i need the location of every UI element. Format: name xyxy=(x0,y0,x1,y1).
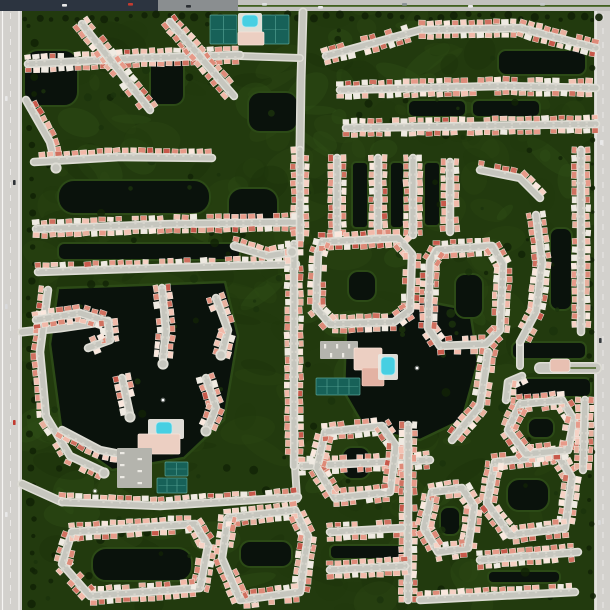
house xyxy=(373,313,380,319)
house xyxy=(460,552,467,557)
house xyxy=(58,66,64,71)
house xyxy=(399,480,404,486)
house xyxy=(142,496,148,501)
tree xyxy=(268,110,275,117)
house xyxy=(505,309,510,316)
house xyxy=(360,231,366,236)
house xyxy=(170,317,175,323)
house xyxy=(574,446,579,453)
aerial-scene xyxy=(0,0,610,610)
house xyxy=(592,115,598,120)
house xyxy=(432,297,438,305)
house xyxy=(285,440,290,447)
house xyxy=(135,519,142,525)
house xyxy=(478,335,485,340)
tree xyxy=(518,251,525,258)
house xyxy=(299,266,304,272)
house xyxy=(571,163,576,170)
house xyxy=(340,328,347,334)
house xyxy=(442,131,449,136)
house xyxy=(335,522,341,527)
house xyxy=(284,423,290,430)
house xyxy=(307,570,313,577)
house xyxy=(180,149,187,154)
house xyxy=(248,226,255,232)
house xyxy=(341,213,346,219)
house xyxy=(266,586,273,592)
house xyxy=(132,216,139,220)
house xyxy=(216,531,221,538)
lake xyxy=(424,162,440,226)
house xyxy=(412,563,417,570)
house xyxy=(399,513,404,520)
house xyxy=(118,520,125,525)
house xyxy=(31,353,37,360)
house xyxy=(588,413,593,420)
house xyxy=(366,497,373,503)
house xyxy=(140,216,146,221)
house xyxy=(304,189,309,195)
house xyxy=(39,152,46,158)
house xyxy=(507,587,514,592)
car xyxy=(318,6,323,9)
gatehouse-east xyxy=(550,359,570,372)
house xyxy=(562,474,568,481)
house xyxy=(529,536,536,541)
house xyxy=(409,117,417,123)
house xyxy=(133,229,139,234)
tree xyxy=(490,56,495,61)
house xyxy=(492,116,498,121)
house xyxy=(478,160,484,166)
house xyxy=(108,494,116,500)
house xyxy=(482,237,490,242)
house xyxy=(420,273,425,279)
house xyxy=(585,78,592,84)
tree xyxy=(523,483,528,488)
house xyxy=(265,490,272,495)
house xyxy=(58,319,65,325)
house xyxy=(293,597,299,603)
house xyxy=(298,349,303,355)
house xyxy=(150,497,157,502)
house xyxy=(218,523,223,530)
house xyxy=(403,179,409,186)
tree xyxy=(56,465,63,472)
house xyxy=(99,320,105,326)
car xyxy=(128,3,133,6)
house xyxy=(499,586,506,591)
house xyxy=(168,530,175,535)
tree xyxy=(439,527,446,534)
house xyxy=(494,563,501,568)
house xyxy=(469,20,475,25)
house xyxy=(368,132,375,137)
house xyxy=(504,325,510,333)
tree xyxy=(29,209,36,216)
house xyxy=(298,415,303,421)
house xyxy=(416,591,422,596)
tree xyxy=(465,268,472,275)
tree xyxy=(282,455,286,459)
house xyxy=(199,493,206,499)
house xyxy=(529,458,535,463)
house xyxy=(575,404,580,411)
house xyxy=(511,90,517,95)
house xyxy=(477,518,482,525)
tree xyxy=(100,15,108,23)
tree xyxy=(432,179,438,185)
house xyxy=(360,573,366,578)
house xyxy=(533,394,539,399)
house xyxy=(328,205,333,211)
cul-de-sac xyxy=(126,413,134,421)
lake xyxy=(550,228,572,310)
house xyxy=(304,197,309,203)
house xyxy=(382,171,387,177)
house xyxy=(335,574,342,578)
house xyxy=(344,244,350,249)
house xyxy=(393,557,399,563)
house xyxy=(106,585,113,591)
house xyxy=(369,221,374,227)
house xyxy=(169,335,176,342)
house xyxy=(419,305,424,312)
house xyxy=(528,221,534,228)
house xyxy=(258,518,265,523)
house xyxy=(559,544,566,549)
house xyxy=(417,188,423,195)
house xyxy=(372,46,380,53)
house xyxy=(58,492,66,498)
house xyxy=(102,534,109,540)
house xyxy=(502,562,509,567)
house xyxy=(550,116,557,121)
house xyxy=(511,77,517,82)
house xyxy=(392,118,399,123)
house xyxy=(403,93,410,98)
house xyxy=(477,356,483,363)
house xyxy=(172,149,178,154)
house xyxy=(544,78,550,83)
swimming-pool xyxy=(242,15,258,27)
house xyxy=(215,494,222,499)
house xyxy=(291,188,297,194)
tree xyxy=(187,185,192,190)
house xyxy=(440,167,445,173)
house xyxy=(357,327,363,332)
house xyxy=(529,284,535,292)
house xyxy=(444,92,451,97)
tree xyxy=(46,596,51,601)
house xyxy=(588,397,594,404)
house xyxy=(41,220,47,225)
house xyxy=(420,280,426,287)
house xyxy=(343,522,349,527)
house xyxy=(585,321,591,328)
house xyxy=(298,440,304,447)
house xyxy=(444,34,450,39)
tree xyxy=(310,423,317,430)
house xyxy=(398,588,403,595)
house xyxy=(454,184,459,191)
house xyxy=(507,284,512,291)
house xyxy=(382,221,388,229)
tree xyxy=(498,403,507,412)
house xyxy=(360,559,366,564)
tree xyxy=(187,554,191,558)
house xyxy=(526,547,533,553)
house xyxy=(585,230,590,236)
house xyxy=(166,497,173,502)
house xyxy=(223,509,231,514)
house xyxy=(495,479,500,486)
house xyxy=(419,33,426,38)
tree xyxy=(99,125,104,130)
house xyxy=(275,516,282,522)
house xyxy=(461,78,468,84)
house xyxy=(240,214,246,219)
tree xyxy=(30,244,36,250)
house xyxy=(417,171,423,179)
house xyxy=(147,147,153,153)
house xyxy=(421,493,427,501)
house xyxy=(466,589,473,594)
house xyxy=(527,523,534,529)
house xyxy=(218,514,224,521)
house xyxy=(531,245,536,253)
house xyxy=(97,148,103,154)
house xyxy=(536,23,543,29)
house xyxy=(290,180,296,186)
house xyxy=(459,117,465,123)
house xyxy=(344,232,350,237)
house xyxy=(108,231,115,236)
house xyxy=(348,327,355,333)
house xyxy=(541,38,548,44)
car xyxy=(13,180,16,185)
parked-car xyxy=(342,353,344,358)
parked-car xyxy=(120,452,125,454)
house xyxy=(351,133,357,138)
house xyxy=(417,155,422,161)
house xyxy=(414,286,419,293)
house xyxy=(157,48,163,54)
house xyxy=(585,147,590,153)
tree xyxy=(114,17,119,22)
house xyxy=(73,535,79,542)
house xyxy=(376,520,383,526)
house xyxy=(571,263,576,269)
house xyxy=(517,463,524,468)
house xyxy=(513,539,520,545)
house xyxy=(208,569,213,576)
house xyxy=(31,343,37,350)
house xyxy=(216,539,221,545)
house xyxy=(88,150,95,155)
house xyxy=(411,79,418,84)
tree xyxy=(223,464,231,472)
house xyxy=(48,308,54,313)
lake xyxy=(348,271,376,301)
clubhouse-north xyxy=(210,13,289,45)
house xyxy=(352,572,358,577)
house xyxy=(116,230,123,235)
tree xyxy=(226,251,231,256)
house xyxy=(250,256,256,262)
house xyxy=(36,302,42,308)
tree xyxy=(590,18,594,22)
house xyxy=(355,433,363,439)
house xyxy=(450,590,456,595)
house xyxy=(176,259,183,264)
gatehouse xyxy=(550,359,570,372)
house xyxy=(107,598,114,604)
house xyxy=(494,77,501,82)
house xyxy=(198,228,205,233)
house xyxy=(308,290,313,296)
house xyxy=(542,546,549,552)
lake xyxy=(352,162,368,228)
house xyxy=(189,579,195,585)
house xyxy=(454,200,460,207)
house xyxy=(50,321,57,327)
house xyxy=(417,204,423,211)
house xyxy=(552,78,559,83)
tree xyxy=(27,415,31,419)
house xyxy=(518,130,524,134)
house xyxy=(55,151,62,156)
house xyxy=(519,560,525,565)
house xyxy=(304,586,310,593)
house xyxy=(369,243,376,249)
house xyxy=(542,295,548,302)
house xyxy=(385,131,391,136)
house xyxy=(143,259,149,264)
house xyxy=(155,341,160,348)
house xyxy=(352,244,358,249)
house xyxy=(342,172,347,178)
house xyxy=(585,171,590,178)
house xyxy=(525,116,531,121)
house xyxy=(433,241,440,245)
house xyxy=(398,446,404,453)
house xyxy=(589,51,595,57)
house xyxy=(467,130,474,136)
house xyxy=(251,519,257,525)
house xyxy=(232,508,239,513)
tree xyxy=(97,209,105,217)
house xyxy=(416,253,421,259)
house xyxy=(575,397,581,403)
house xyxy=(461,524,468,532)
house xyxy=(485,461,490,468)
house xyxy=(90,600,97,605)
house xyxy=(585,163,590,170)
house xyxy=(151,518,157,523)
house xyxy=(101,261,107,266)
house xyxy=(403,253,408,260)
house xyxy=(381,483,388,488)
house xyxy=(303,155,308,161)
house xyxy=(572,213,577,220)
house xyxy=(477,32,484,38)
house xyxy=(534,129,541,134)
house xyxy=(336,536,342,542)
house xyxy=(381,314,388,319)
house xyxy=(49,219,55,224)
house xyxy=(373,453,379,459)
tree xyxy=(32,569,38,575)
house xyxy=(153,285,159,293)
parked-car xyxy=(138,482,143,484)
road-top-transition xyxy=(158,0,238,11)
house xyxy=(337,421,344,427)
house xyxy=(491,495,497,503)
house xyxy=(297,332,303,339)
house xyxy=(184,258,191,263)
house xyxy=(32,370,38,377)
house xyxy=(385,571,392,576)
house xyxy=(530,237,536,244)
house xyxy=(483,587,489,592)
house xyxy=(421,264,426,271)
house xyxy=(399,421,404,428)
tree xyxy=(346,479,351,484)
house xyxy=(585,197,589,203)
swimming-pool xyxy=(381,357,395,375)
house xyxy=(285,357,290,364)
house xyxy=(571,271,576,278)
house xyxy=(182,495,189,501)
house xyxy=(114,585,121,590)
house xyxy=(528,92,534,96)
house xyxy=(342,180,347,186)
tree xyxy=(456,107,459,110)
house xyxy=(571,510,576,516)
house xyxy=(572,279,577,286)
house xyxy=(453,78,460,83)
house xyxy=(494,267,500,274)
house xyxy=(51,262,58,267)
house xyxy=(572,304,577,311)
house xyxy=(474,380,480,387)
house xyxy=(340,314,346,319)
house xyxy=(328,171,334,178)
house xyxy=(454,176,459,182)
house xyxy=(34,378,40,385)
house xyxy=(444,20,450,25)
house xyxy=(476,251,482,257)
house xyxy=(377,229,383,234)
street xyxy=(300,12,303,150)
house xyxy=(412,430,418,436)
house xyxy=(353,81,360,86)
house xyxy=(516,586,522,591)
house xyxy=(297,534,303,541)
house xyxy=(362,80,368,85)
house xyxy=(170,325,175,331)
house xyxy=(299,471,306,476)
house xyxy=(244,603,251,609)
tree xyxy=(142,66,150,74)
house xyxy=(327,574,334,580)
house xyxy=(511,32,517,37)
house xyxy=(445,493,453,499)
house xyxy=(298,290,303,297)
house xyxy=(309,458,315,465)
house xyxy=(494,164,501,170)
